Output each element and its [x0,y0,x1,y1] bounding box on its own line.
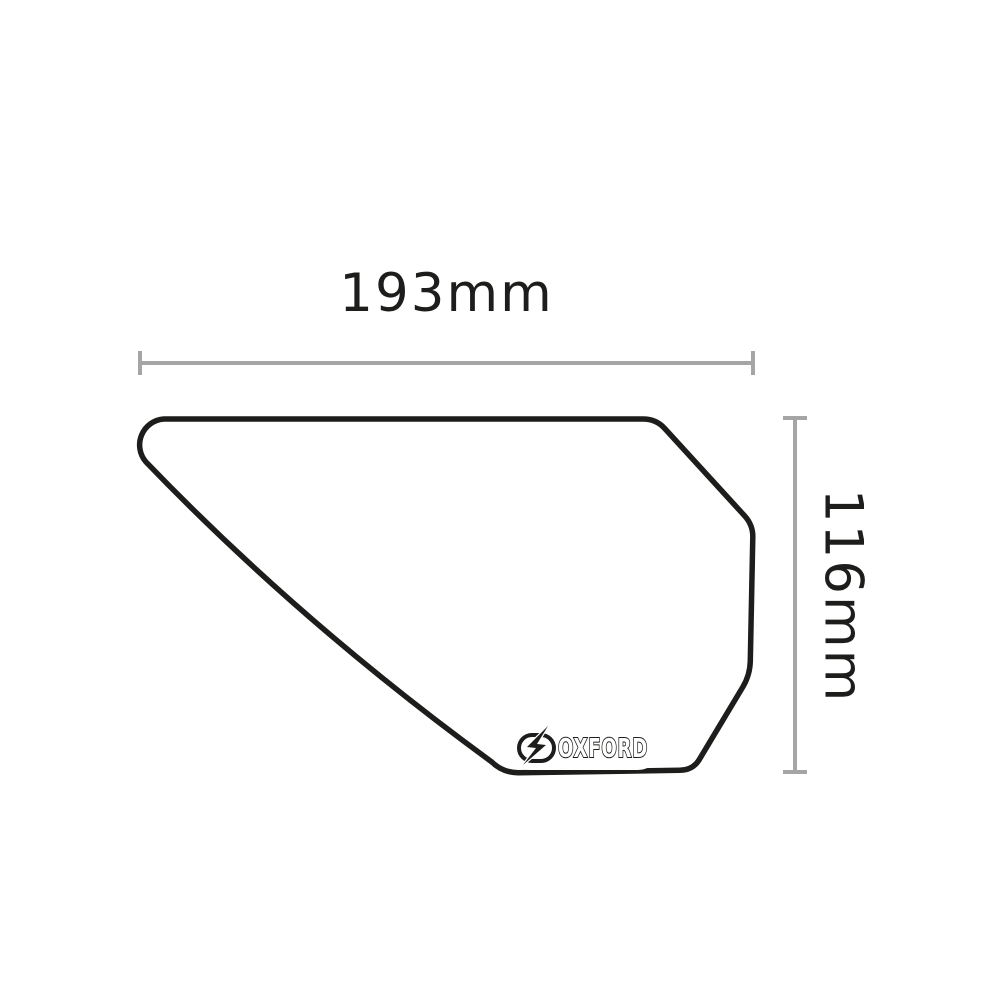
product-dimension-diagram: 193mm 116mm OXFORD [0,0,1000,1000]
brand-name: OXFORD [558,734,648,764]
brand-logo: OXFORD [508,726,660,770]
pad-inner-margin [140,419,753,773]
tank-pad-drawing: OXFORD [0,0,1000,1000]
